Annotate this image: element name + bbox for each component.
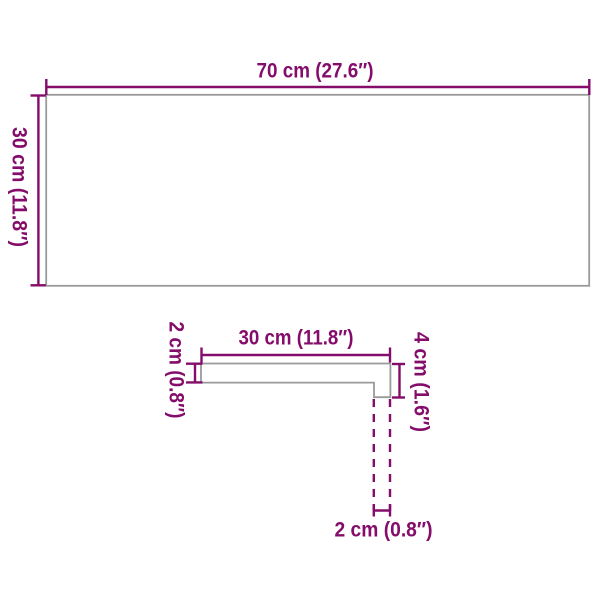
svg-text:30 cm (11.8″): 30 cm (11.8″) <box>239 327 354 350</box>
svg-text:4 cm (1.6″): 4 cm (1.6″) <box>410 332 433 432</box>
svg-text:2 cm (0.8″): 2 cm (0.8″) <box>165 322 188 419</box>
svg-text:2 cm (0.8″): 2 cm (0.8″) <box>335 519 433 542</box>
svg-text:30 cm (11.8″): 30 cm (11.8″) <box>8 127 31 247</box>
svg-text:70 cm (27.6″): 70 cm (27.6″) <box>257 60 374 83</box>
